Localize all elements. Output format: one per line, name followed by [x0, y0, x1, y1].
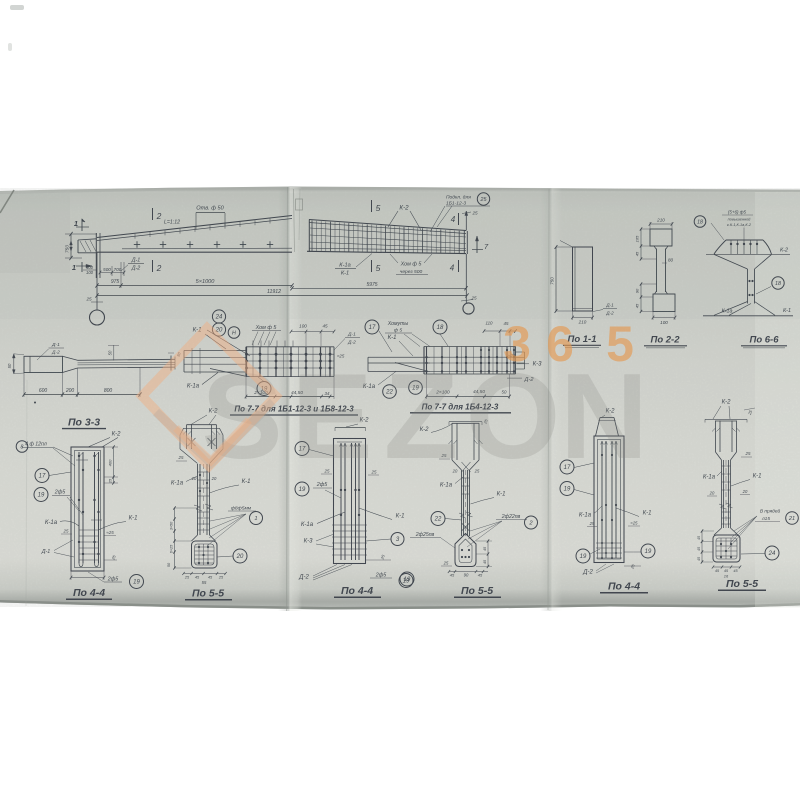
svg-text:По 5-5: По 5-5	[726, 578, 758, 590]
svg-text:19: 19	[564, 487, 571, 493]
svg-text:Хом ф 5: Хом ф 5	[400, 262, 423, 268]
svg-text:50: 50	[7, 363, 12, 368]
svg-text:55: 55	[202, 580, 207, 585]
svg-text:6×25: 6×25	[169, 544, 173, 553]
svg-text:200: 200	[65, 388, 75, 394]
svg-text:19: 19	[38, 493, 45, 499]
svg-text:19: 19	[133, 580, 140, 586]
svg-text:2ф5: 2ф5	[375, 573, 388, 579]
svg-text:К-2: К-2	[399, 205, 409, 212]
svg-text:45: 45	[635, 251, 640, 256]
svg-text:25: 25	[480, 197, 488, 203]
svg-text:25: 25	[85, 297, 92, 302]
svg-text:24: 24	[768, 551, 776, 557]
svg-text:повышенной: повышенной	[728, 218, 752, 222]
svg-text:Д-1: Д-1	[131, 258, 141, 264]
svg-text:5: 5	[376, 263, 381, 273]
svg-text:ф 5: ф 5	[394, 328, 402, 334]
svg-text:45: 45	[697, 547, 701, 551]
svg-text:2ф25пв: 2ф25пв	[415, 532, 435, 538]
svg-text:25: 25	[443, 561, 449, 566]
svg-text:500: 500	[103, 267, 111, 272]
svg-text:≈25: ≈25	[106, 530, 114, 535]
svg-text:3: 3	[503, 316, 531, 372]
svg-text:3×50: 3×50	[169, 521, 173, 530]
svg-text:к.К-1,К-1а,К-2: к.К-1,К-1а,К-2	[727, 223, 752, 227]
svg-text:5: 5	[376, 203, 381, 213]
svg-text:≈25: ≈25	[631, 521, 639, 526]
svg-text:18: 18	[437, 325, 444, 331]
svg-text:К-1а: К-1а	[171, 481, 184, 487]
svg-text:45: 45	[697, 557, 701, 561]
svg-text:5975: 5975	[366, 282, 377, 288]
svg-text:К-1: К-1	[388, 335, 397, 341]
svg-text:2: 2	[156, 211, 162, 221]
svg-text:К-2: К-2	[112, 432, 122, 438]
svg-text:К-1а: К-1а	[187, 384, 200, 390]
svg-text:45: 45	[322, 324, 328, 329]
svg-text:L=1:12: L=1:12	[164, 220, 180, 226]
svg-text:45: 45	[450, 573, 455, 578]
svg-text:1: 1	[74, 219, 78, 228]
svg-text:25: 25	[472, 211, 479, 216]
svg-text:20: 20	[236, 554, 244, 560]
svg-text:К-1а: К-1а	[722, 309, 733, 315]
svg-text:К-1: К-1	[396, 514, 405, 520]
svg-text:19: 19	[645, 549, 652, 555]
svg-text:750: 750	[65, 245, 71, 253]
svg-text:25: 25	[589, 521, 595, 526]
svg-text:5: 5	[606, 316, 634, 372]
svg-text:2ф22пв: 2ф22пв	[501, 514, 521, 520]
svg-text:4 ф 12пл: 4 ф 12пл	[25, 442, 47, 448]
svg-text:22: 22	[434, 517, 442, 523]
svg-text:К-1: К-1	[341, 271, 349, 277]
svg-text:Д-1: Д-1	[605, 303, 614, 308]
svg-text:80: 80	[668, 258, 674, 263]
svg-text:24: 24	[215, 315, 223, 321]
svg-text:800: 800	[104, 388, 113, 394]
svg-text:18: 18	[775, 281, 781, 287]
svg-text:4: 4	[450, 264, 455, 273]
svg-text:2ф5: 2ф5	[107, 577, 120, 583]
svg-text:1: 1	[72, 263, 76, 272]
svg-text:По 4-4: По 4-4	[73, 587, 105, 599]
svg-text:110: 110	[486, 321, 494, 326]
svg-text:По 4-4: По 4-4	[608, 581, 640, 593]
svg-text:К-1а: К-1а	[579, 513, 592, 519]
svg-text:50: 50	[108, 350, 113, 355]
svg-text:Хомуты: Хомуты	[387, 321, 409, 327]
svg-text:25: 25	[63, 529, 69, 534]
svg-text:Z: Z	[384, 348, 459, 484]
svg-text:21: 21	[788, 516, 795, 522]
svg-text:К-1а: К-1а	[703, 475, 716, 481]
svg-text:По 6-6: По 6-6	[749, 335, 779, 346]
svg-text:400: 400	[107, 459, 112, 466]
svg-text:К-1: К-1	[129, 516, 138, 522]
svg-text:45: 45	[478, 573, 483, 578]
svg-text:Д-1: Д-1	[347, 332, 356, 338]
svg-text:Хом ф 5: Хом ф 5	[255, 325, 278, 331]
svg-text:К-1а: К-1а	[301, 522, 314, 528]
svg-text:600: 600	[39, 388, 48, 394]
svg-text:19: 19	[299, 487, 306, 493]
svg-text:6: 6	[546, 316, 574, 372]
svg-text:2: 2	[156, 263, 162, 273]
svg-text:В прядей: В прядей	[760, 508, 781, 515]
svg-text:8: 8	[21, 444, 24, 450]
svg-text:750: 750	[550, 277, 555, 285]
svg-text:К-2: К-2	[722, 400, 732, 406]
svg-text:700: 700	[114, 267, 122, 272]
svg-text:20: 20	[191, 476, 197, 481]
svg-text:45: 45	[697, 536, 701, 540]
svg-text:(5+6) ф5: (5+6) ф5	[728, 210, 747, 215]
svg-text:2ф5: 2ф5	[54, 490, 67, 496]
svg-text:через 500: через 500	[400, 269, 423, 275]
svg-text:18: 18	[697, 219, 703, 225]
svg-text:25: 25	[745, 451, 751, 456]
svg-text:По 5-5: По 5-5	[192, 588, 224, 600]
svg-text:19: 19	[580, 554, 587, 560]
svg-text:975: 975	[111, 279, 120, 285]
svg-text:Отв. ф 50: Отв. ф 50	[196, 206, 224, 212]
svg-text:Д-2: Д-2	[582, 570, 593, 576]
svg-text:100: 100	[660, 320, 668, 325]
svg-text:К-1: К-1	[497, 492, 506, 498]
svg-text:По 4-4: По 4-4	[341, 585, 373, 597]
svg-text:По 3-3: По 3-3	[68, 417, 100, 429]
svg-text:100: 100	[86, 270, 94, 275]
svg-text:Н: Н	[232, 330, 236, 336]
svg-text:11912: 11912	[267, 289, 281, 295]
svg-text:4: 4	[451, 215, 456, 224]
svg-text:К-1: К-1	[643, 511, 652, 517]
svg-text:Д-1: Д-1	[41, 549, 51, 555]
svg-text:25: 25	[218, 575, 224, 580]
svg-text:К-2: К-2	[780, 248, 788, 254]
svg-text:По 2-2: По 2-2	[650, 335, 680, 346]
svg-text:Д-2: Д-2	[605, 311, 614, 316]
svg-text:25: 25	[178, 455, 184, 460]
svg-text:100: 100	[299, 324, 307, 329]
svg-text:1Б1-12-3: 1Б1-12-3	[446, 201, 466, 207]
svg-text:Д-2: Д-2	[131, 266, 141, 272]
svg-text:Д-1: Д-1	[51, 342, 60, 348]
svg-text:210: 210	[578, 320, 587, 325]
svg-text:25: 25	[108, 478, 112, 484]
svg-text:20: 20	[742, 489, 748, 494]
svg-text:5×1000: 5×1000	[196, 279, 216, 285]
svg-text:По 5-5: По 5-5	[461, 585, 493, 597]
svg-text:45: 45	[635, 303, 640, 308]
svg-text:E: E	[291, 348, 372, 484]
svg-text:17: 17	[369, 325, 376, 331]
svg-text:К-1а: К-1а	[45, 520, 58, 526]
svg-text:л15: л15	[761, 516, 770, 522]
svg-text:Подкл. для: Подкл. для	[446, 195, 471, 201]
svg-text:К-1а: К-1а	[339, 263, 350, 269]
svg-text:165: 165	[635, 235, 640, 242]
svg-text:ф8ф5мм: ф8ф5мм	[231, 506, 252, 512]
svg-text:Д-2: Д-2	[347, 340, 356, 346]
svg-text:90: 90	[464, 573, 469, 578]
svg-text:Д-2: Д-2	[51, 350, 60, 356]
svg-text:К-1: К-1	[753, 474, 762, 480]
svg-text:К-1: К-1	[783, 308, 791, 314]
svg-text:1: 1	[254, 516, 257, 522]
svg-text:90: 90	[635, 288, 640, 293]
svg-text:К-3: К-3	[304, 539, 314, 545]
svg-text:17: 17	[39, 474, 46, 480]
svg-text:210: 210	[656, 218, 665, 223]
svg-text:Д-2: Д-2	[298, 575, 309, 581]
svg-text:25: 25	[184, 575, 190, 580]
svg-text:19: 19	[403, 579, 410, 585]
svg-text:20: 20	[709, 491, 715, 496]
